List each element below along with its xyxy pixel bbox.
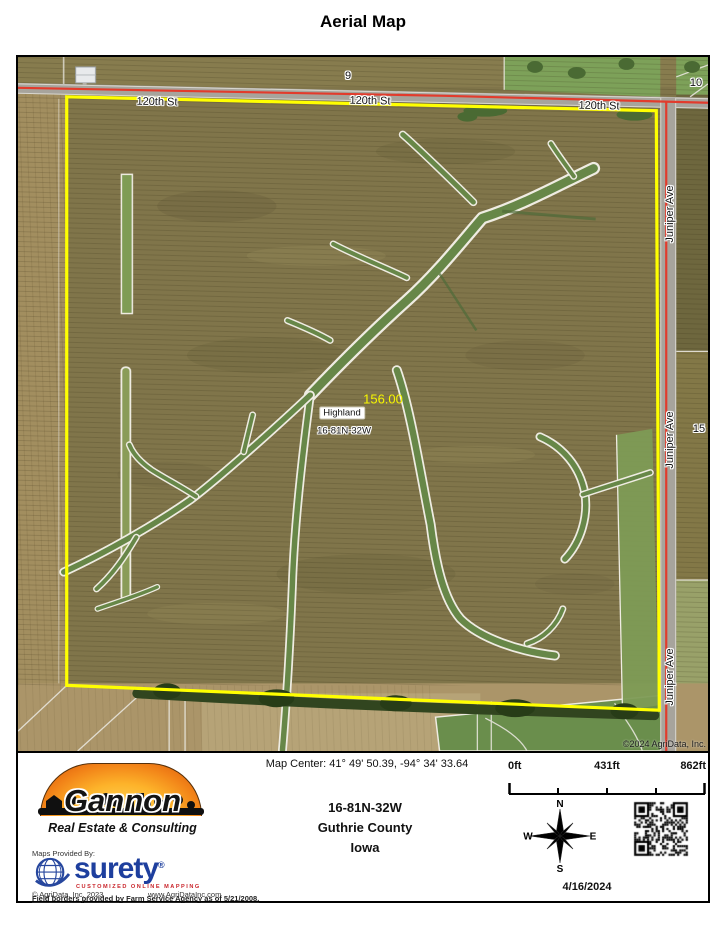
scale-bar-graphic [508,780,706,796]
gannon-wordmark: Gannon [30,783,215,819]
scale-bar: 0ft 431ft 862ft [508,760,706,796]
scale-end-label: 862ft [680,760,706,772]
gannon-tagline: Real Estate & Consulting [30,821,215,835]
registered-mark: ® [158,860,165,870]
section-label-15: 15 [693,423,705,435]
surety-wordmark: surety [74,852,158,885]
aerial-map-report-page: Aerial Map [0,0,726,928]
road-label-juniper-ave-1: Juniper Ave [664,185,676,242]
parcel-acres-label: 156.00 [363,392,403,407]
compass-rose-icon: N E S W [522,798,598,874]
scale-mid-label: 431ft [508,760,706,772]
map-date: 4/16/2024 [537,881,637,893]
gannon-logo: Gannon Real Estate & Consulting [30,761,215,845]
section-label-9: 9 [345,70,351,82]
page-title: Aerial Map [0,12,726,32]
road-label-juniper-ave-3: Juniper Ave [664,648,676,705]
map-center-coordinates: Map Center: 41° 49' 50.39, -94° 34' 33.6… [182,758,552,770]
parcel-trs-label: 16-81N-32W [317,426,371,437]
field-borders-disclaimer: Field borders provided by Farm Service A… [32,894,259,903]
compass-west-label: W [523,832,533,843]
parcel-name-label: Highland [320,408,364,419]
map-copyright: ©2024 AgriData, Inc. [623,739,706,749]
section-label-10: 10 [690,77,702,89]
aerial-map: 120th St 120th St 120th St Juniper Ave J… [16,55,710,753]
compass-north-label: N [556,799,563,810]
road-label-juniper-ave-2: Juniper Ave [664,411,676,468]
compass-south-label: S [557,864,564,874]
globe-icon [32,857,72,891]
road-label-120th-st-1: 120th St [136,96,177,109]
compass-east-label: E [590,832,597,843]
road-label-120th-st-3: 120th St [578,100,619,113]
road-label-120th-st-2: 120th St [349,95,390,108]
qr-code [632,800,690,858]
map-footer: Map Center: 41° 49' 50.39, -94° 34' 33.6… [16,753,710,903]
